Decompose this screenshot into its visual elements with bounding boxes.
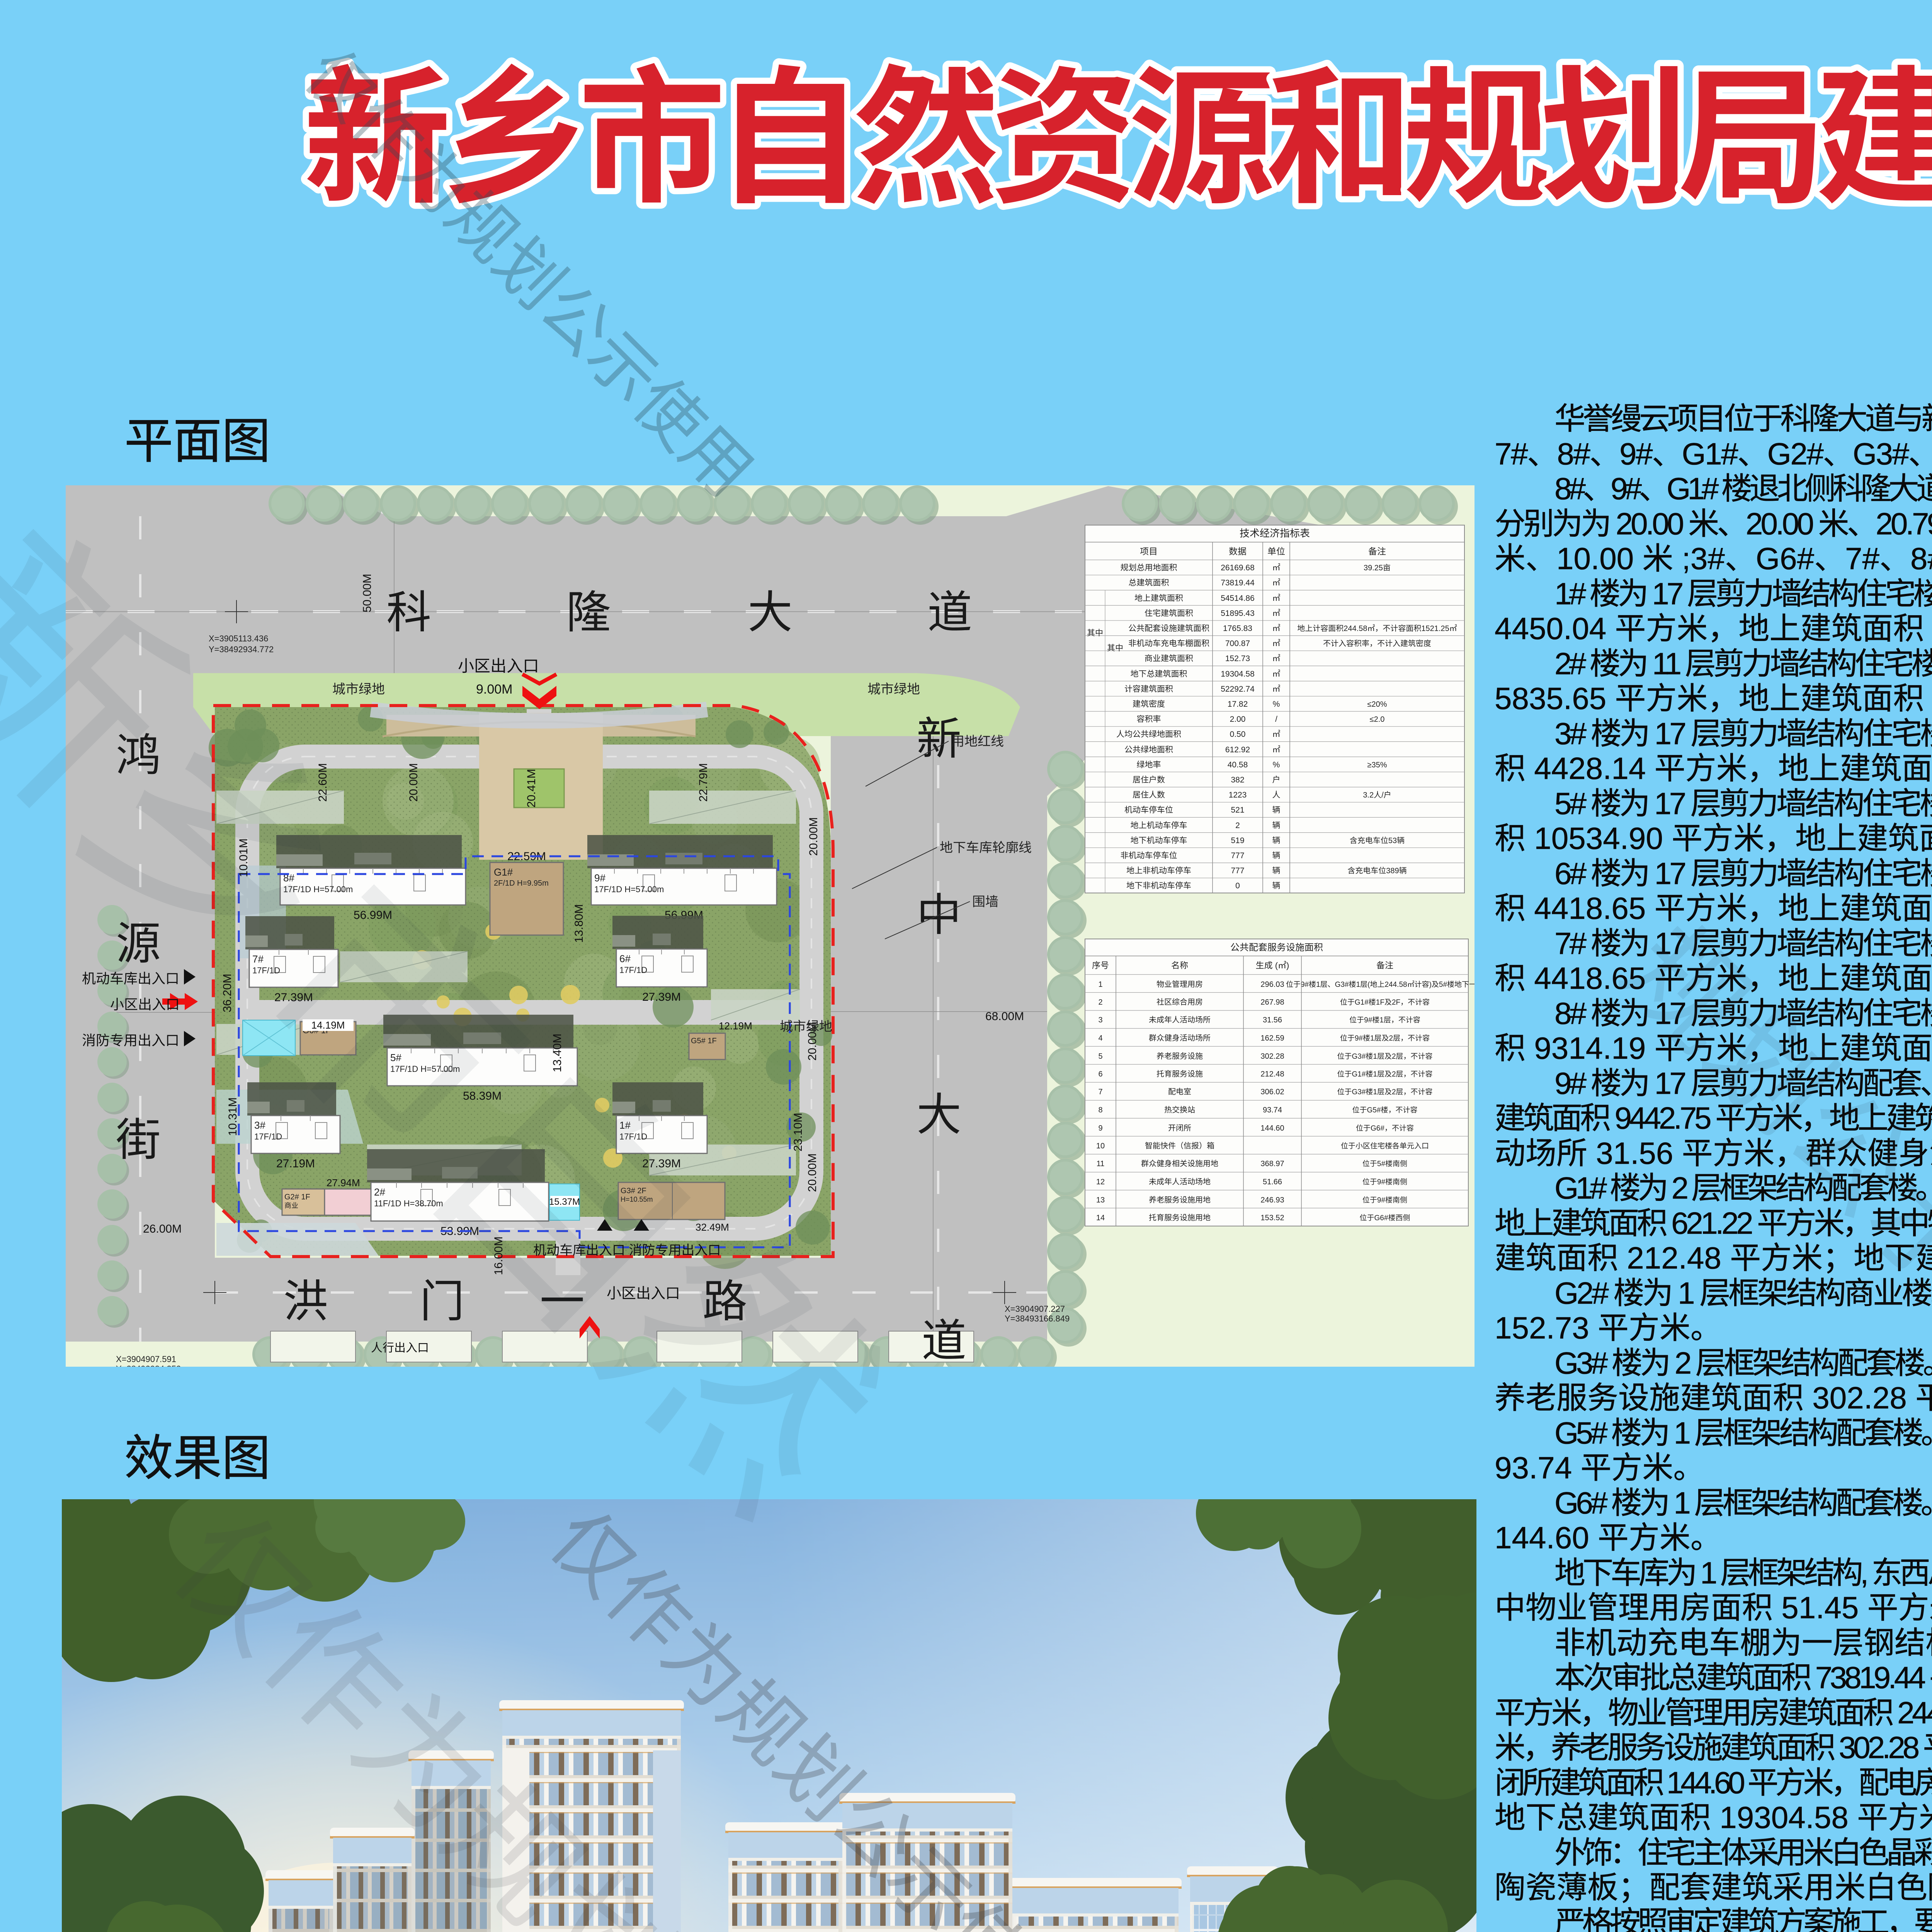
svg-text:G3# 2F: G3# 2F: [621, 1187, 646, 1195]
svg-text:162.59: 162.59: [1260, 1034, 1284, 1043]
svg-text:306.02: 306.02: [1260, 1088, 1284, 1096]
svg-text:8: 8: [1098, 1106, 1102, 1114]
svg-text:22.60M: 22.60M: [316, 763, 329, 802]
svg-text:隆: 隆: [566, 587, 611, 638]
svg-text:13: 13: [1096, 1196, 1105, 1204]
svg-text:3#: 3#: [254, 1119, 265, 1131]
svg-text:5: 5: [1098, 1052, 1102, 1061]
svg-text:Y=38492934.772: Y=38492934.772: [209, 645, 274, 654]
svg-text:10.01M: 10.01M: [237, 838, 250, 877]
svg-text:20.00M: 20.00M: [807, 817, 820, 856]
svg-text:14: 14: [1096, 1214, 1105, 1222]
svg-text:12: 12: [1096, 1178, 1105, 1186]
svg-text:㎡: ㎡: [1272, 639, 1281, 648]
svg-text:单位: 单位: [1267, 546, 1285, 556]
svg-text:17F/1D H=57.00m: 17F/1D H=57.00m: [283, 884, 353, 894]
svg-text:17F/1D: 17F/1D: [619, 965, 647, 975]
svg-text:9.00M: 9.00M: [476, 682, 513, 697]
svg-text:位于9#楼南侧: 位于9#楼南侧: [1362, 1178, 1407, 1186]
svg-text:2#: 2#: [374, 1186, 385, 1198]
svg-text:㎡: ㎡: [1272, 654, 1281, 663]
svg-text:热交换站: 热交换站: [1164, 1106, 1195, 1114]
svg-text:519: 519: [1231, 836, 1244, 845]
svg-text:生成 (㎡): 生成 (㎡): [1256, 961, 1289, 970]
svg-text:养老服务设施: 养老服务设施: [1156, 1052, 1203, 1061]
svg-text:辆: 辆: [1272, 866, 1281, 875]
svg-text:辆: 辆: [1272, 821, 1281, 830]
svg-text:源: 源: [116, 918, 161, 969]
svg-text:城市绿地: 城市绿地: [867, 682, 920, 697]
svg-text:地下机动车停车: 地下机动车停车: [1131, 836, 1187, 845]
svg-text:道: 道: [922, 1316, 966, 1366]
svg-text:15.37M: 15.37M: [549, 1197, 580, 1207]
svg-text:公共配套设施建筑面积: 公共配套设施建筑面积: [1128, 624, 1209, 633]
svg-text:备注: 备注: [1376, 961, 1393, 970]
svg-text:㎡: ㎡: [1272, 730, 1281, 739]
svg-text:新乡市自然资源和规划局建设项目公告牌: 新乡市自然资源和规划局建设项目公告牌: [303, 56, 1932, 221]
svg-text:27.39M: 27.39M: [274, 991, 313, 1004]
svg-text:%: %: [1273, 700, 1280, 709]
svg-text:机动车库出入口: 机动车库出入口: [82, 971, 179, 986]
svg-text:地下非机动车停车: 地下非机动车停车: [1126, 881, 1191, 890]
svg-text:公共配套服务设施面积: 公共配套服务设施面积: [1230, 942, 1323, 953]
svg-text:总建筑面积: 总建筑面积: [1129, 578, 1169, 587]
svg-text:2.00: 2.00: [1230, 715, 1246, 724]
svg-text:位于5#楼南侧: 位于5#楼南侧: [1362, 1160, 1407, 1168]
svg-text:计容建筑面积: 计容建筑面积: [1124, 685, 1173, 694]
svg-text:144.60: 144.60: [1260, 1124, 1284, 1133]
svg-text:技术经济指标表: 技术经济指标表: [1240, 527, 1310, 539]
svg-text:6: 6: [1098, 1070, 1102, 1078]
svg-text:1765.83: 1765.83: [1223, 624, 1252, 633]
svg-text:382: 382: [1231, 776, 1244, 784]
svg-text:围墙: 围墙: [972, 895, 998, 909]
svg-text:39.25亩: 39.25亩: [1364, 564, 1391, 572]
svg-text:户: 户: [1272, 776, 1281, 784]
svg-text:含充电车位53辆: 含充电车位53辆: [1350, 837, 1405, 845]
svg-text:7: 7: [1098, 1088, 1102, 1096]
svg-text:≤20%: ≤20%: [1367, 700, 1387, 709]
svg-text:一: 一: [540, 1276, 585, 1327]
svg-text:≤2.0: ≤2.0: [1370, 715, 1385, 724]
svg-text:消防专用出入口: 消防专用出入口: [82, 1032, 179, 1048]
svg-text:7#: 7#: [252, 953, 264, 965]
svg-text:17F/1D: 17F/1D: [619, 1132, 647, 1141]
svg-text:302.28: 302.28: [1260, 1052, 1284, 1061]
svg-text:3.2人/户: 3.2人/户: [1363, 791, 1391, 799]
svg-text:73819.44: 73819.44: [1221, 578, 1255, 587]
svg-text:机动车停车位: 机动车停车位: [1124, 806, 1173, 815]
svg-text:Y=38493166.849: Y=38493166.849: [1005, 1314, 1070, 1323]
svg-text:街: 街: [116, 1115, 161, 1165]
svg-text:23.10M: 23.10M: [792, 1113, 804, 1151]
svg-text:群众健身相关设施用地: 群众健身相关设施用地: [1141, 1160, 1218, 1168]
svg-text:1#: 1#: [619, 1119, 631, 1131]
svg-text:G1#: G1#: [494, 866, 513, 878]
svg-text:住宅建筑面积: 住宅建筑面积: [1145, 609, 1193, 618]
svg-text:212.48: 212.48: [1260, 1070, 1284, 1078]
svg-text:名称: 名称: [1171, 961, 1188, 970]
svg-text:位于9#楼1层、G3#楼1层(地上244.58㎡计容)及5#: 位于9#楼1层、G3#楼1层(地上244.58㎡计容)及5#楼地下一层: [1286, 980, 1475, 989]
svg-text:位于小区住宅楼各单元入口: 位于小区住宅楼各单元入口: [1341, 1142, 1429, 1150]
svg-text:X=3904907.591: X=3904907.591: [116, 1354, 176, 1364]
svg-text:居住人数: 居住人数: [1133, 791, 1165, 799]
svg-text:20.41M: 20.41M: [525, 769, 538, 808]
svg-text:开闭所: 开闭所: [1168, 1124, 1191, 1133]
svg-text:含充电车位389辆: 含充电车位389辆: [1347, 867, 1406, 875]
svg-text:6#: 6#: [619, 953, 631, 964]
svg-text:非机动车停车位: 非机动车停车位: [1121, 851, 1177, 860]
svg-text:11: 11: [1097, 1160, 1105, 1168]
svg-text:2: 2: [1235, 821, 1240, 830]
svg-text:54514.86: 54514.86: [1221, 594, 1255, 603]
svg-text:人行出入口: 人行出入口: [371, 1342, 429, 1354]
svg-text:人均公共绿地面积: 人均公共绿地面积: [1116, 730, 1181, 739]
svg-text:0: 0: [1235, 881, 1240, 890]
svg-text:小区出入口: 小区出入口: [607, 1286, 680, 1302]
svg-text:19304.58: 19304.58: [1221, 670, 1255, 679]
svg-text:配电室: 配电室: [1168, 1088, 1191, 1096]
svg-text:17F/1D H=57.00m: 17F/1D H=57.00m: [594, 884, 664, 894]
svg-text:托育服务设施用地: 托育服务设施用地: [1149, 1214, 1211, 1222]
svg-text:科: 科: [386, 587, 431, 638]
svg-text:13.40M: 13.40M: [551, 1034, 564, 1072]
svg-text:51895.43: 51895.43: [1221, 609, 1255, 618]
svg-text:50.00M: 50.00M: [361, 574, 374, 612]
svg-text:㎡: ㎡: [1272, 684, 1281, 694]
svg-text:52292.74: 52292.74: [1221, 685, 1255, 694]
svg-text:27.39M: 27.39M: [642, 991, 681, 1003]
svg-text:27.94M: 27.94M: [327, 1177, 360, 1189]
svg-text:93.74: 93.74: [1263, 1106, 1282, 1114]
svg-text:2F/1D H=9.95m: 2F/1D H=9.95m: [494, 879, 549, 888]
svg-text:14.19M: 14.19M: [311, 1019, 345, 1031]
svg-text:612.92: 612.92: [1225, 745, 1250, 754]
svg-text:数据: 数据: [1229, 546, 1247, 556]
svg-text:容积率: 容积率: [1137, 715, 1161, 724]
svg-text:368.97: 368.97: [1260, 1160, 1284, 1168]
svg-text:777: 777: [1231, 866, 1244, 875]
svg-text:居住户数: 居住户数: [1133, 776, 1165, 784]
svg-text:城市绿地: 城市绿地: [780, 1019, 832, 1034]
svg-text:68.00M: 68.00M: [985, 1010, 1024, 1023]
svg-text:地上机动车停车: 地上机动车停车: [1131, 821, 1187, 830]
svg-text:58.39M: 58.39M: [463, 1090, 502, 1102]
svg-text:27.39M: 27.39M: [642, 1157, 681, 1170]
svg-text:位于9#楼南侧: 位于9#楼南侧: [1362, 1196, 1407, 1204]
svg-text:40.58: 40.58: [1228, 760, 1248, 769]
svg-text:道: 道: [927, 587, 972, 638]
svg-text:公共绿地面积: 公共绿地面积: [1124, 745, 1173, 754]
svg-text:序号: 序号: [1092, 961, 1109, 970]
svg-text:建筑密度: 建筑密度: [1133, 700, 1165, 709]
svg-text:2: 2: [1098, 998, 1102, 1007]
svg-text:㎡: ㎡: [1272, 578, 1281, 587]
svg-text:商业建筑面积: 商业建筑面积: [1145, 654, 1193, 663]
svg-text:商业: 商业: [284, 1202, 298, 1209]
svg-text:辆: 辆: [1272, 806, 1281, 815]
svg-text:700.87: 700.87: [1225, 639, 1250, 648]
svg-text:26.00M: 26.00M: [143, 1223, 182, 1235]
svg-text:位于9#楼1层，不计容: 位于9#楼1层，不计容: [1349, 1016, 1420, 1024]
svg-text:不计入容积率，不计入建筑密度: 不计入容积率，不计入建筑密度: [1323, 639, 1431, 648]
svg-text:51.66: 51.66: [1263, 1178, 1282, 1186]
svg-text:地上计容面积244.58㎡，不计容面积1521.25㎡: 地上计容面积244.58㎡，不计容面积1521.25㎡: [1297, 624, 1457, 633]
svg-text:4: 4: [1098, 1034, 1102, 1043]
svg-text:1223: 1223: [1229, 791, 1247, 799]
svg-text:㎡: ㎡: [1272, 669, 1281, 679]
svg-text:未成年人活动场所: 未成年人活动场所: [1149, 1016, 1211, 1024]
svg-text:群众健身活动场所: 群众健身活动场所: [1149, 1034, 1211, 1043]
svg-text:小区出入口: 小区出入口: [458, 657, 539, 675]
svg-text:规划总用地面积: 规划总用地面积: [1121, 563, 1177, 572]
svg-text:10.31M: 10.31M: [226, 1097, 239, 1136]
svg-text:非机动车充电车棚面积: 非机动车充电车棚面积: [1128, 639, 1209, 648]
svg-text:246.93: 246.93: [1260, 1196, 1284, 1204]
svg-text:㎡: ㎡: [1272, 745, 1281, 754]
svg-text:㎡: ㎡: [1272, 624, 1281, 633]
svg-text:G2# 1F: G2# 1F: [284, 1193, 310, 1201]
svg-text:X=3904907.227: X=3904907.227: [1005, 1304, 1065, 1314]
svg-text:Y=38492934.352: Y=38492934.352: [116, 1364, 181, 1367]
svg-text:9: 9: [1098, 1124, 1102, 1133]
svg-text:辆: 辆: [1272, 881, 1281, 890]
svg-text:9#: 9#: [594, 872, 605, 884]
svg-text:20.00M: 20.00M: [806, 1153, 819, 1192]
svg-text:296.03: 296.03: [1260, 980, 1284, 989]
svg-text:153.52: 153.52: [1260, 1214, 1284, 1222]
svg-text:777: 777: [1231, 851, 1244, 860]
svg-text:26169.68: 26169.68: [1221, 563, 1255, 572]
svg-text:㎡: ㎡: [1272, 609, 1281, 618]
svg-text:㎡: ㎡: [1272, 594, 1281, 603]
svg-text:27.19M: 27.19M: [276, 1157, 315, 1170]
svg-text:位于G5#楼，不计容: 位于G5#楼，不计容: [1352, 1106, 1418, 1114]
svg-text:洪: 洪: [283, 1276, 328, 1327]
svg-text:社区综合用房: 社区综合用房: [1156, 998, 1203, 1007]
svg-text:辆: 辆: [1272, 851, 1281, 860]
svg-text:地上非机动车停车: 地上非机动车停车: [1126, 866, 1191, 875]
svg-text:12.19M: 12.19M: [719, 1020, 752, 1032]
svg-text:位于G1#楼1F及2F，不计容: 位于G1#楼1F及2F，不计容: [1340, 998, 1430, 1007]
svg-text:大: 大: [748, 587, 793, 638]
svg-text:17F/1D: 17F/1D: [254, 1132, 282, 1141]
svg-text:%: %: [1273, 760, 1280, 769]
svg-text:17.82: 17.82: [1228, 700, 1248, 709]
svg-text:10: 10: [1096, 1142, 1105, 1150]
svg-text:位于G3#楼1层及2层，不计容: 位于G3#楼1层及2层，不计容: [1337, 1088, 1432, 1096]
svg-text:托育服务设施: 托育服务设施: [1156, 1070, 1203, 1078]
svg-text:城市绿地: 城市绿地: [332, 682, 385, 697]
svg-text:267.98: 267.98: [1260, 998, 1284, 1007]
svg-text:H=10.55m: H=10.55m: [621, 1196, 653, 1203]
svg-text:32.49M: 32.49M: [696, 1221, 729, 1233]
svg-text:/: /: [1275, 715, 1277, 724]
svg-text:㎡: ㎡: [1272, 563, 1281, 572]
svg-text:路: 路: [702, 1276, 747, 1327]
svg-text:物业管理用房: 物业管理用房: [1156, 980, 1203, 989]
svg-text:机动车库出入口 消防专用出入口: 机动车库出入口 消防专用出入口: [533, 1243, 721, 1258]
svg-text:36.20M: 36.20M: [221, 974, 234, 1012]
svg-text:其中: 其中: [1107, 644, 1123, 653]
svg-text:17F/1D: 17F/1D: [252, 966, 280, 975]
svg-text:X=3905113.436: X=3905113.436: [209, 634, 268, 643]
svg-text:未成年人活动场地: 未成年人活动场地: [1149, 1178, 1211, 1186]
svg-text:人: 人: [1272, 791, 1281, 799]
svg-text:智能快件（信报）箱: 智能快件（信报）箱: [1145, 1141, 1214, 1150]
svg-text:位于G6#楼西侧: 位于G6#楼西侧: [1360, 1214, 1410, 1222]
svg-text:其中: 其中: [1087, 629, 1103, 638]
svg-text:地下车库轮廓线: 地下车库轮廓线: [940, 840, 1032, 855]
svg-text:位于G3#楼1层及2层，不计容: 位于G3#楼1层及2层，不计容: [1337, 1052, 1432, 1061]
svg-text:3: 3: [1098, 1016, 1102, 1024]
svg-text:门: 门: [420, 1276, 464, 1327]
svg-text:小区出入口: 小区出入口: [110, 997, 180, 1012]
svg-text:备注: 备注: [1368, 546, 1386, 556]
svg-text:位于9#楼1层及2层，不计容: 位于9#楼1层及2层，不计容: [1340, 1034, 1430, 1043]
svg-text:≥35%: ≥35%: [1367, 761, 1387, 769]
svg-text:521: 521: [1231, 806, 1244, 815]
svg-text:17F/1D H=57.00m: 17F/1D H=57.00m: [390, 1064, 460, 1074]
svg-text:绿地率: 绿地率: [1137, 760, 1161, 769]
svg-text:项目: 项目: [1140, 546, 1158, 556]
svg-text:5#: 5#: [390, 1052, 401, 1063]
svg-text:16.00M: 16.00M: [492, 1236, 505, 1275]
svg-text:用地红线: 用地红线: [951, 734, 1004, 749]
svg-text:1: 1: [1098, 980, 1102, 989]
svg-text:位于G6#，不计容: 位于G6#，不计容: [1356, 1124, 1414, 1133]
svg-text:20.00M: 20.00M: [407, 763, 420, 802]
svg-text:31.56: 31.56: [1263, 1016, 1282, 1024]
svg-text:地上建筑面积: 地上建筑面积: [1134, 594, 1183, 603]
svg-text:56.99M: 56.99M: [354, 909, 392, 922]
svg-text:11F/1D H=38.70m: 11F/1D H=38.70m: [374, 1199, 443, 1208]
svg-text:0.50: 0.50: [1230, 730, 1246, 739]
svg-text:位于G1#楼1层及2层，不计容: 位于G1#楼1层及2层，不计容: [1337, 1070, 1432, 1078]
svg-text:G5# 1F: G5# 1F: [691, 1037, 717, 1045]
svg-text:22.79M: 22.79M: [697, 763, 710, 802]
svg-text:152.73: 152.73: [1225, 654, 1250, 663]
svg-text:辆: 辆: [1272, 836, 1281, 845]
svg-text:养老服务设施用地: 养老服务设施用地: [1149, 1196, 1211, 1204]
svg-text:13.80M: 13.80M: [573, 904, 585, 943]
svg-text:鸿: 鸿: [116, 730, 161, 781]
svg-text:大: 大: [917, 1090, 961, 1140]
svg-text:地下总建筑面积: 地下总建筑面积: [1131, 670, 1187, 679]
